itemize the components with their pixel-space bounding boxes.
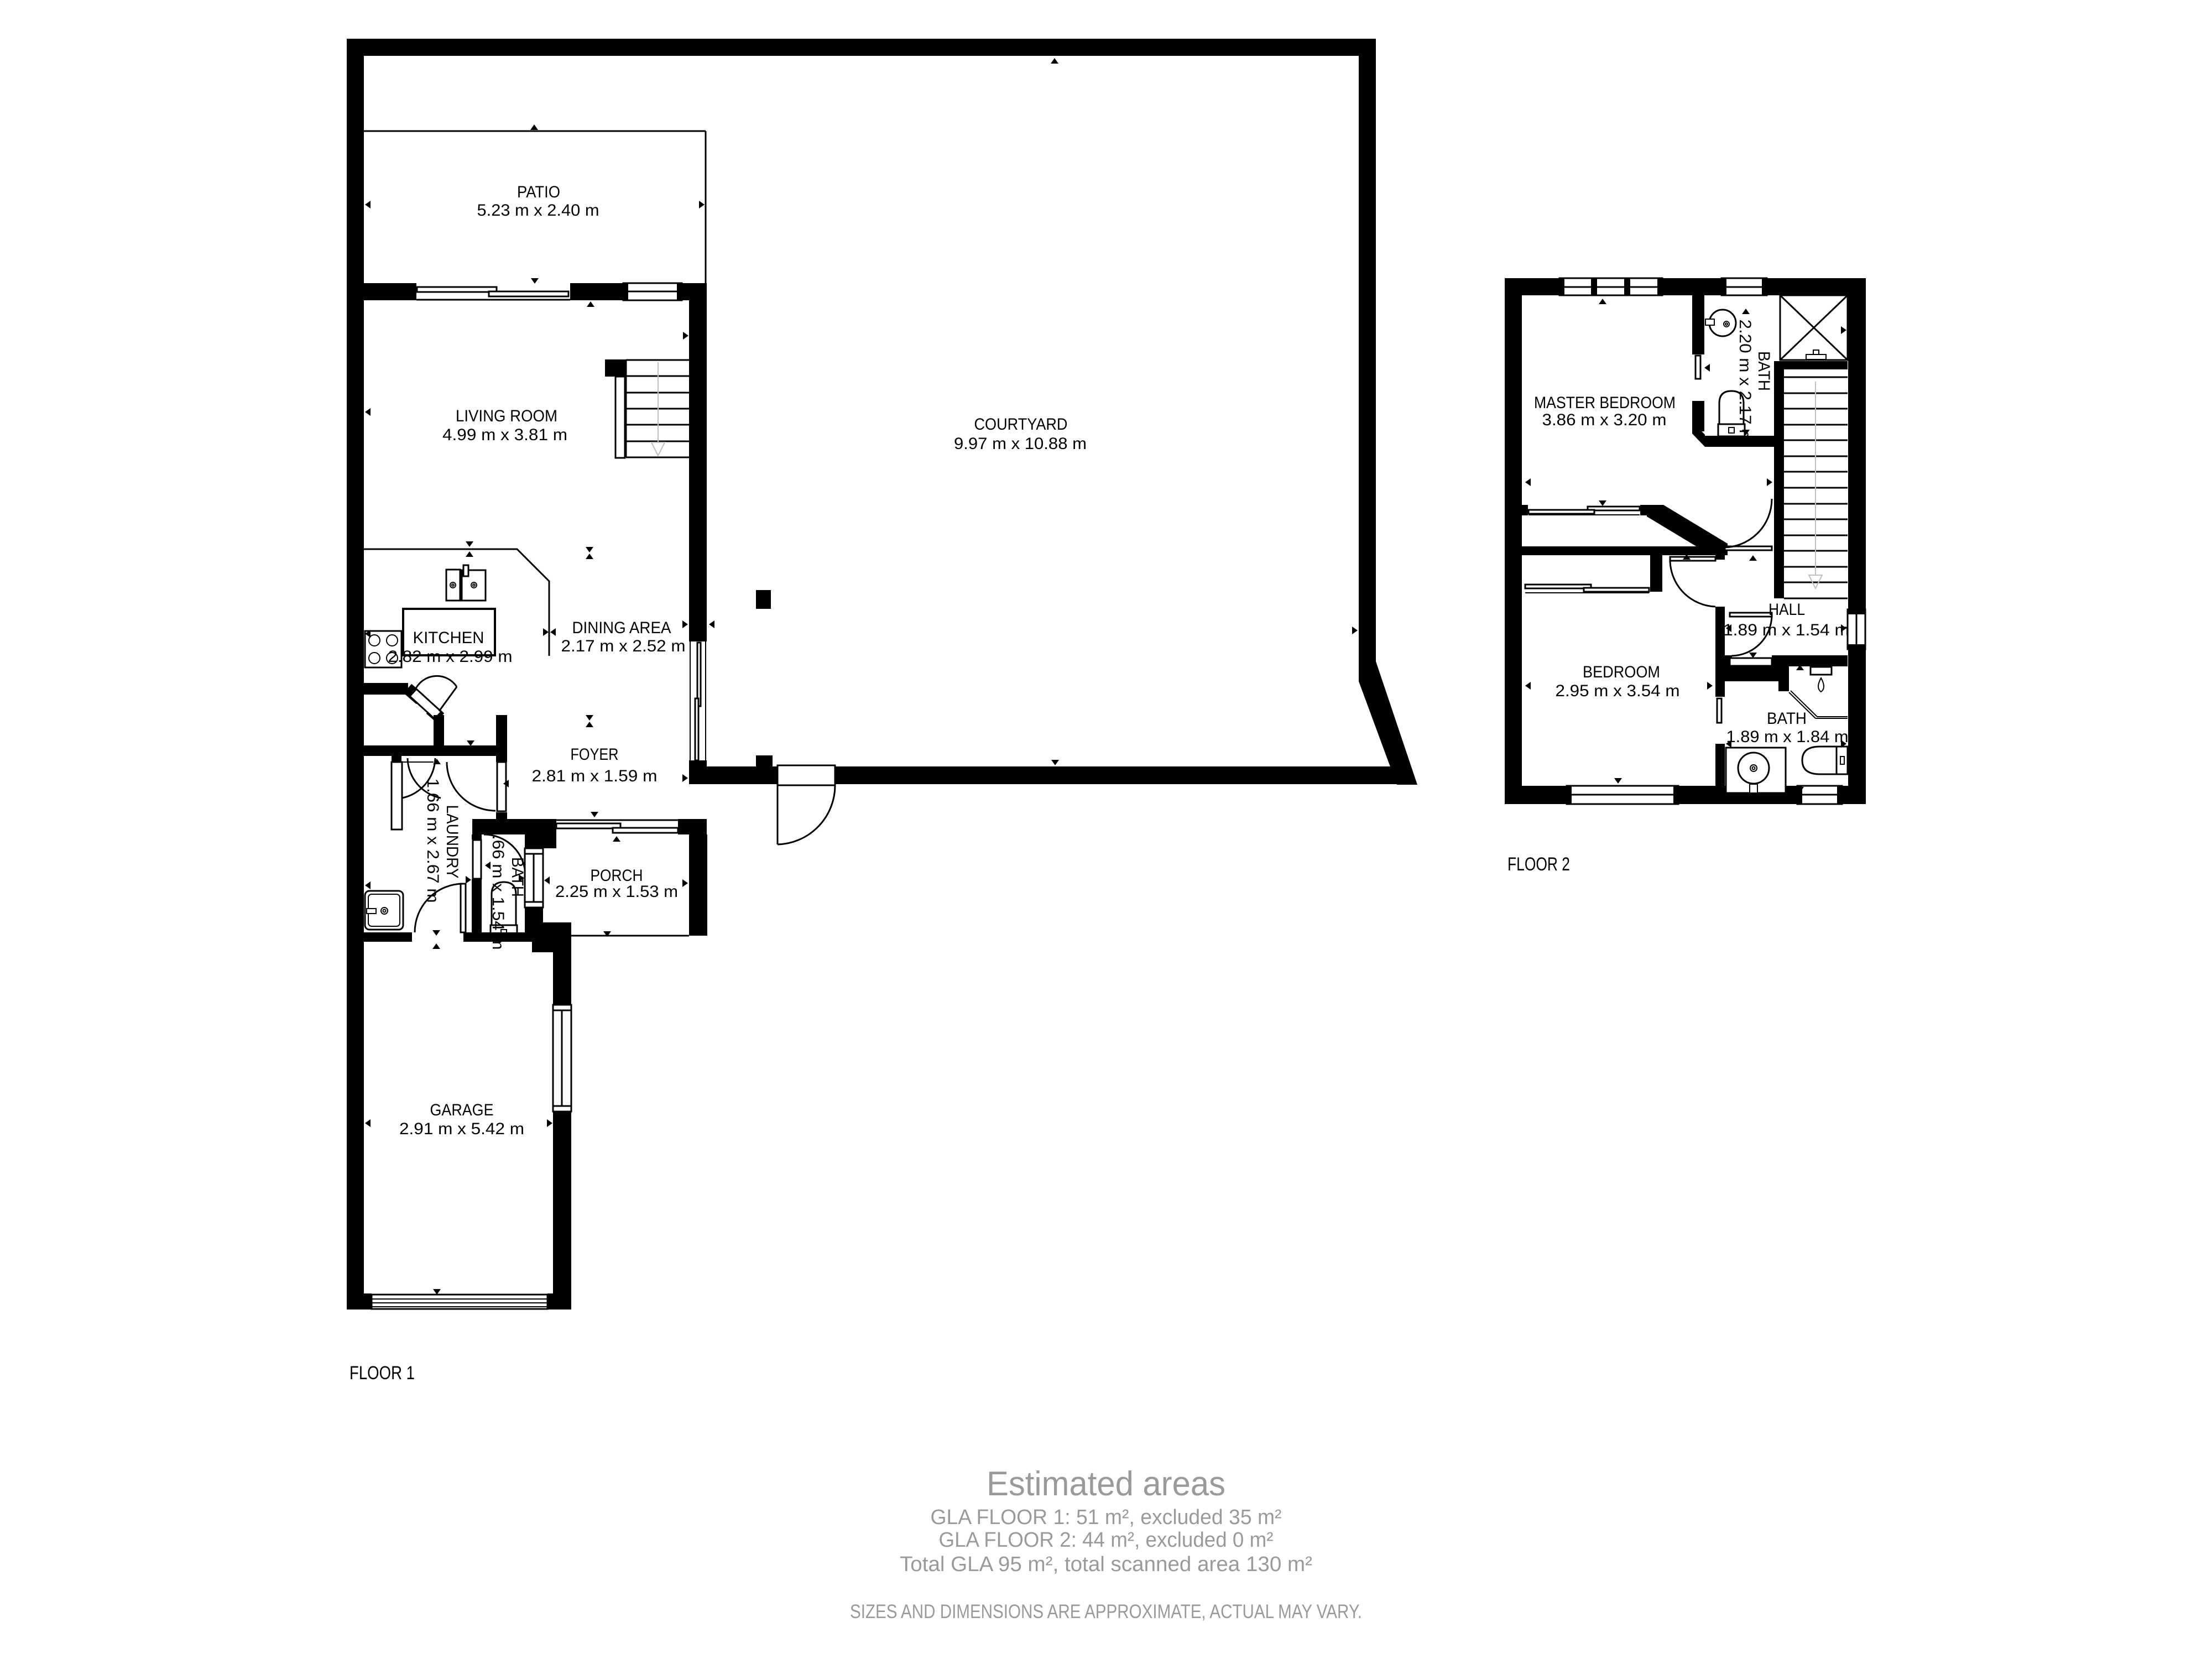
svg-text:2.91 m x 5.42 m: 2.91 m x 5.42 m — [399, 1120, 524, 1138]
svg-text:GARAGE: GARAGE — [430, 1101, 494, 1119]
svg-text:2.25 m x 1.53 m: 2.25 m x 1.53 m — [555, 883, 678, 901]
svg-text:FLOOR 2: FLOOR 2 — [1507, 854, 1570, 875]
svg-text:BATH: BATH — [508, 857, 526, 897]
svg-text:1.66 m x 2.67 m: 1.66 m x 2.67 m — [424, 779, 442, 903]
svg-text:SIZES AND DIMENSIONS ARE APPRO: SIZES AND DIMENSIONS ARE APPROXIMATE, AC… — [850, 1601, 1362, 1623]
svg-text:5.23 m x 2.40 m: 5.23 m x 2.40 m — [477, 201, 599, 220]
svg-text:LIVING ROOM: LIVING ROOM — [456, 407, 557, 425]
svg-text:GLA FLOOR 1: 51 m², excluded 3: GLA FLOOR 1: 51 m², excluded 35 m² — [931, 1506, 1282, 1529]
svg-text:2.95 m x 3.54 m: 2.95 m x 3.54 m — [1556, 682, 1680, 700]
svg-text:Estimated areas: Estimated areas — [987, 1465, 1225, 1503]
svg-text:KITCHEN: KITCHEN — [413, 629, 484, 647]
svg-text:2.17 m x 2.52 m: 2.17 m x 2.52 m — [561, 637, 686, 655]
svg-text:DINING AREA: DINING AREA — [572, 619, 671, 637]
svg-text:2.82 m x 2.99 m: 2.82 m x 2.99 m — [388, 648, 513, 666]
svg-text:PATIO: PATIO — [517, 183, 560, 201]
svg-text:MASTER BEDROOM: MASTER BEDROOM — [1534, 394, 1676, 412]
svg-text:FLOOR 1: FLOOR 1 — [349, 1363, 415, 1384]
svg-text:4.99 m x 3.81 m: 4.99 m x 3.81 m — [442, 426, 567, 444]
svg-text:LAUNDRY: LAUNDRY — [443, 805, 461, 879]
svg-text:FOYER: FOYER — [571, 745, 619, 764]
svg-text:1.66 m x 1.54 m: 1.66 m x 1.54 m — [489, 826, 507, 950]
svg-text:BEDROOM: BEDROOM — [1583, 663, 1660, 681]
svg-text:9.97 m x 10.88 m: 9.97 m x 10.88 m — [954, 435, 1087, 453]
svg-text:3.86 m x 3.20 m: 3.86 m x 3.20 m — [1542, 411, 1667, 429]
svg-text:2.20 m x 2.17 m: 2.20 m x 2.17 m — [1736, 320, 1754, 444]
svg-text:COURTYARD: COURTYARD — [974, 415, 1068, 434]
svg-text:BATH: BATH — [1767, 709, 1807, 728]
svg-text:BATH: BATH — [1755, 351, 1773, 391]
svg-text:2.81 m x 1.59 m: 2.81 m x 1.59 m — [532, 767, 658, 785]
svg-text:1.89 m x 1.84 m: 1.89 m x 1.84 m — [1726, 728, 1849, 746]
svg-text:HALL: HALL — [1768, 601, 1805, 619]
svg-text:1.89 m x 1.54 m: 1.89 m x 1.54 m — [1723, 621, 1849, 639]
svg-text:Total GLA 95 m², total scanned: Total GLA 95 m², total scanned area 130 … — [900, 1553, 1312, 1576]
svg-text:GLA FLOOR 2: 44 m², excluded 0: GLA FLOOR 2: 44 m², excluded 0 m² — [939, 1528, 1274, 1552]
